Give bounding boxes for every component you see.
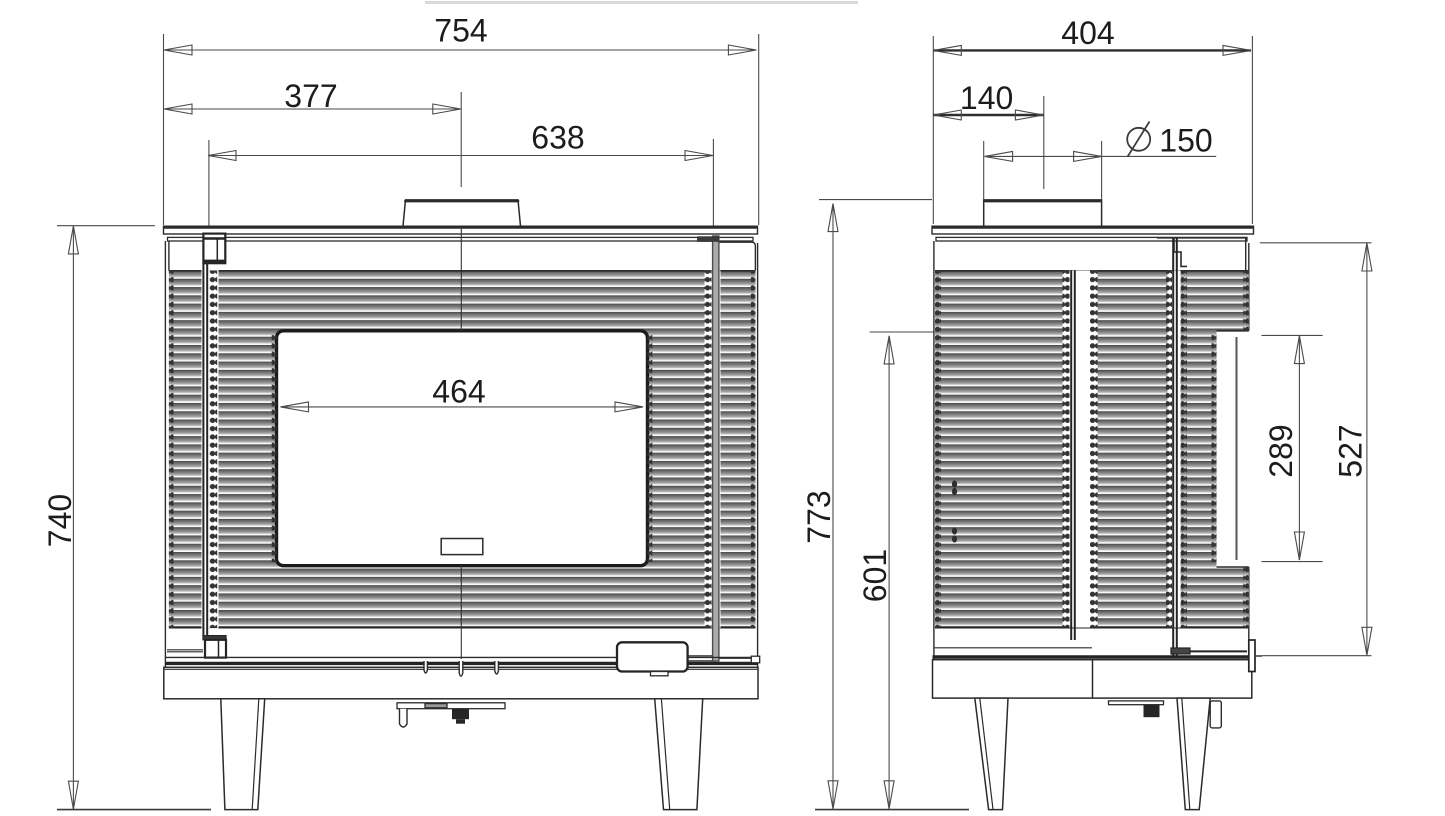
- svg-text:377: 377: [284, 78, 337, 114]
- svg-text:773: 773: [801, 490, 837, 543]
- svg-text:404: 404: [1061, 15, 1114, 51]
- svg-text:754: 754: [434, 13, 487, 49]
- svg-text:740: 740: [42, 494, 78, 547]
- svg-text:140: 140: [960, 80, 1013, 116]
- svg-text:464: 464: [432, 373, 485, 409]
- svg-text:289: 289: [1263, 424, 1299, 477]
- svg-text:638: 638: [531, 120, 584, 156]
- svg-text:150: 150: [1159, 123, 1212, 159]
- svg-text:601: 601: [857, 549, 893, 602]
- svg-text:527: 527: [1333, 424, 1369, 477]
